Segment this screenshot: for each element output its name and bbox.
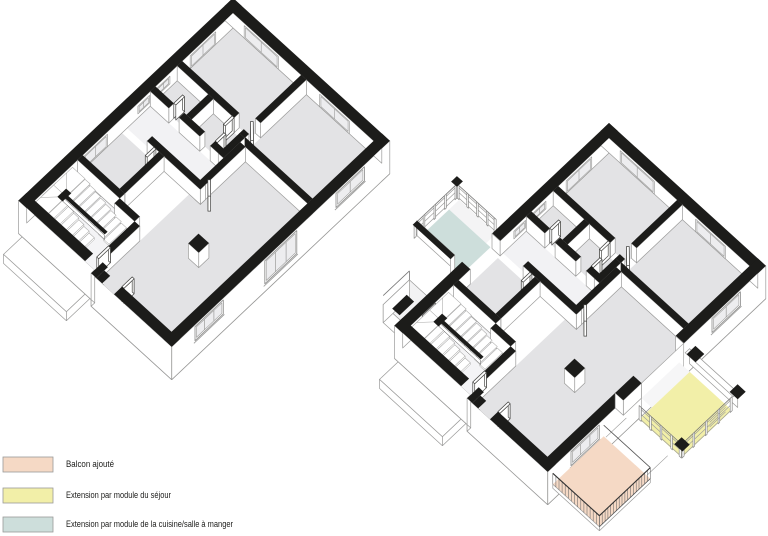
svg-text:Extension par module du séjour: Extension par module du séjour [66,490,172,501]
svg-text:Extension par module de la cui: Extension par module de la cuisine/salle… [66,519,234,530]
svg-text:Balcon ajouté: Balcon ajouté [66,459,114,470]
